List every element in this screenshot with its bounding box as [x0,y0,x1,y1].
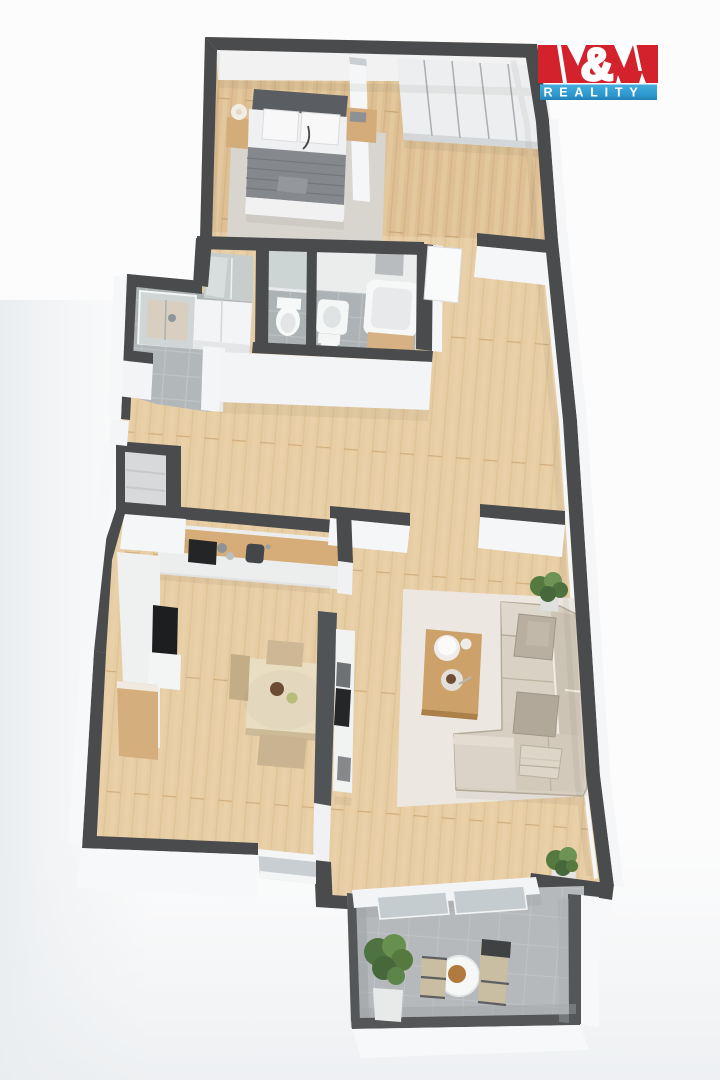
svg-text:REALITY: REALITY [543,86,644,100]
svg-text:&: & [581,39,614,90]
